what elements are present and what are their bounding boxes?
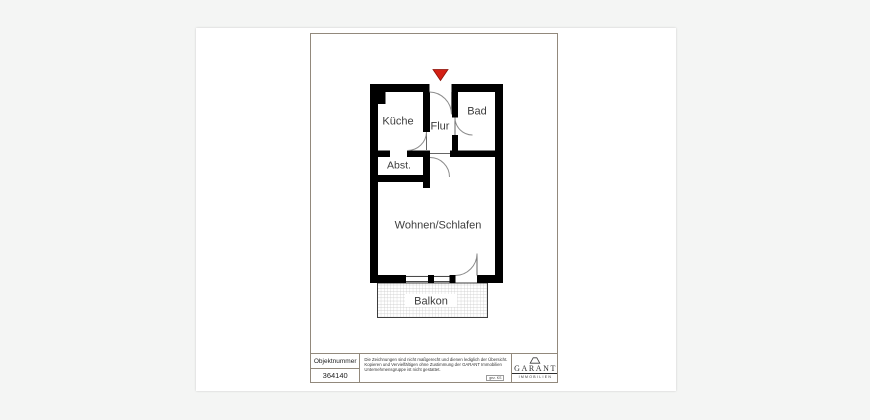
disclaimer-line: Unternehmensgruppe ist nicht gestattet. xyxy=(364,367,507,372)
object-number-label: Objektnummer xyxy=(311,354,359,369)
logo-cell: GARANT IMMOBILIEN xyxy=(512,354,557,382)
drawn-by-box: gez. KS xyxy=(486,375,504,382)
disclaimer-line: Die Zeichnungen sind nicht maßgerecht un… xyxy=(364,357,507,362)
drawing-sheet: Küche Flur Bad Abst. Wohnen/Schlafen Bal… xyxy=(196,28,676,391)
logo-house-icon xyxy=(529,357,541,364)
title-block: Objektnummer 364140 Die Zeichnungen sind… xyxy=(311,353,557,382)
object-number-cell: Objektnummer 364140 xyxy=(311,354,360,382)
object-number-value: 364140 xyxy=(311,369,359,382)
sheet-frame: Objektnummer 364140 Die Zeichnungen sind… xyxy=(310,33,558,383)
logo-subtitle: IMMOBILIEN xyxy=(517,375,552,380)
disclaimer-cell: Die Zeichnungen sind nicht maßgerecht un… xyxy=(360,354,512,382)
screenshot-root: { "colors": { "background": "#f4f5f4", "… xyxy=(0,0,870,420)
logo-name: GARANT xyxy=(512,365,557,374)
